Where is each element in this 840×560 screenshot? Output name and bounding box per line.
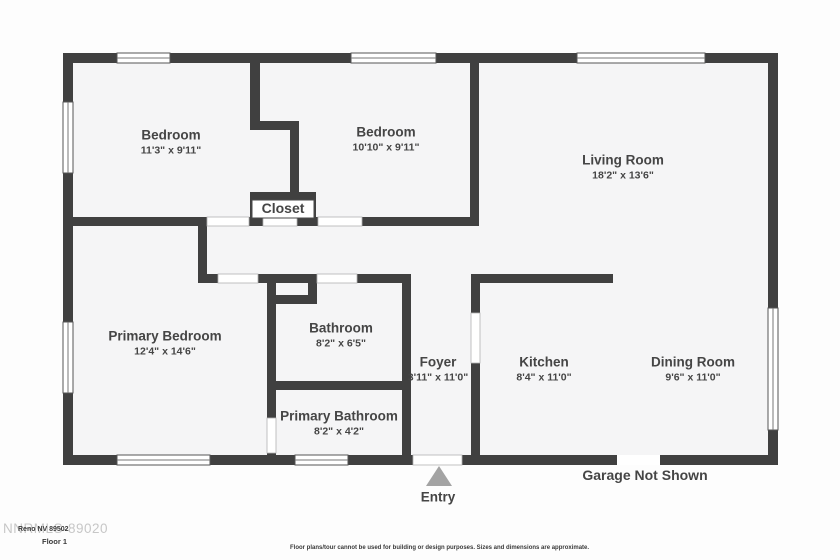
entry-door-opening (413, 455, 462, 465)
wall-segment (402, 274, 411, 465)
wall-segment (198, 217, 207, 283)
wall-segment (471, 274, 613, 283)
floor-interior (63, 53, 778, 465)
wall-segment (267, 381, 411, 390)
wall-segment (267, 453, 276, 465)
door-opening (318, 217, 362, 226)
wall-segment (470, 63, 479, 226)
door-opening (317, 274, 357, 283)
floor-plan: Bedroom 11'3" x 9'11" Bedroom 10'10" x 9… (0, 0, 840, 560)
wall-segment (471, 363, 480, 465)
closet-box (252, 200, 314, 218)
garage-door-opening (617, 455, 660, 465)
wall-segment (63, 217, 207, 226)
wall-segment (267, 304, 276, 381)
wall-segment (258, 274, 317, 283)
wall-segment (290, 121, 299, 201)
wall-segment (250, 63, 260, 130)
wall-segment (267, 295, 316, 304)
entry-arrow-icon (426, 466, 452, 486)
wall-segment (471, 283, 480, 313)
door-opening (207, 217, 249, 226)
floor-plan-drawing (0, 0, 840, 560)
wall-segment (267, 390, 276, 418)
door-opening (218, 274, 258, 283)
wall-segment (362, 217, 479, 226)
door-opening (267, 418, 276, 453)
wall-segment (198, 274, 218, 283)
door-opening (471, 313, 480, 363)
